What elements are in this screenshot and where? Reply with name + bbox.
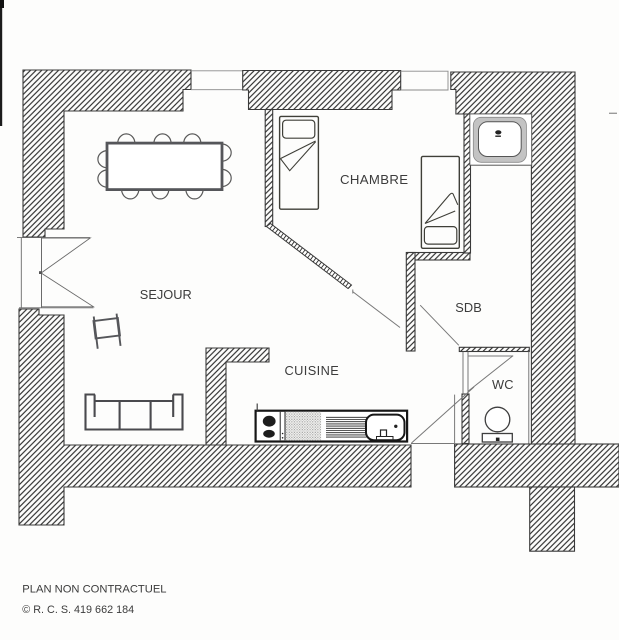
svg-text:SEJOUR: SEJOUR xyxy=(140,287,192,302)
svg-text:PLAN NON CONTRACTUEL: PLAN NON CONTRACTUEL xyxy=(22,583,166,595)
svg-text:SDB: SDB xyxy=(455,300,482,315)
svg-text:© R. C. S. 419 662 184: © R. C. S. 419 662 184 xyxy=(22,604,134,616)
svg-text:CHAMBRE: CHAMBRE xyxy=(340,172,408,187)
svg-text:CUISINE: CUISINE xyxy=(285,363,340,378)
svg-text:WC: WC xyxy=(492,377,514,392)
